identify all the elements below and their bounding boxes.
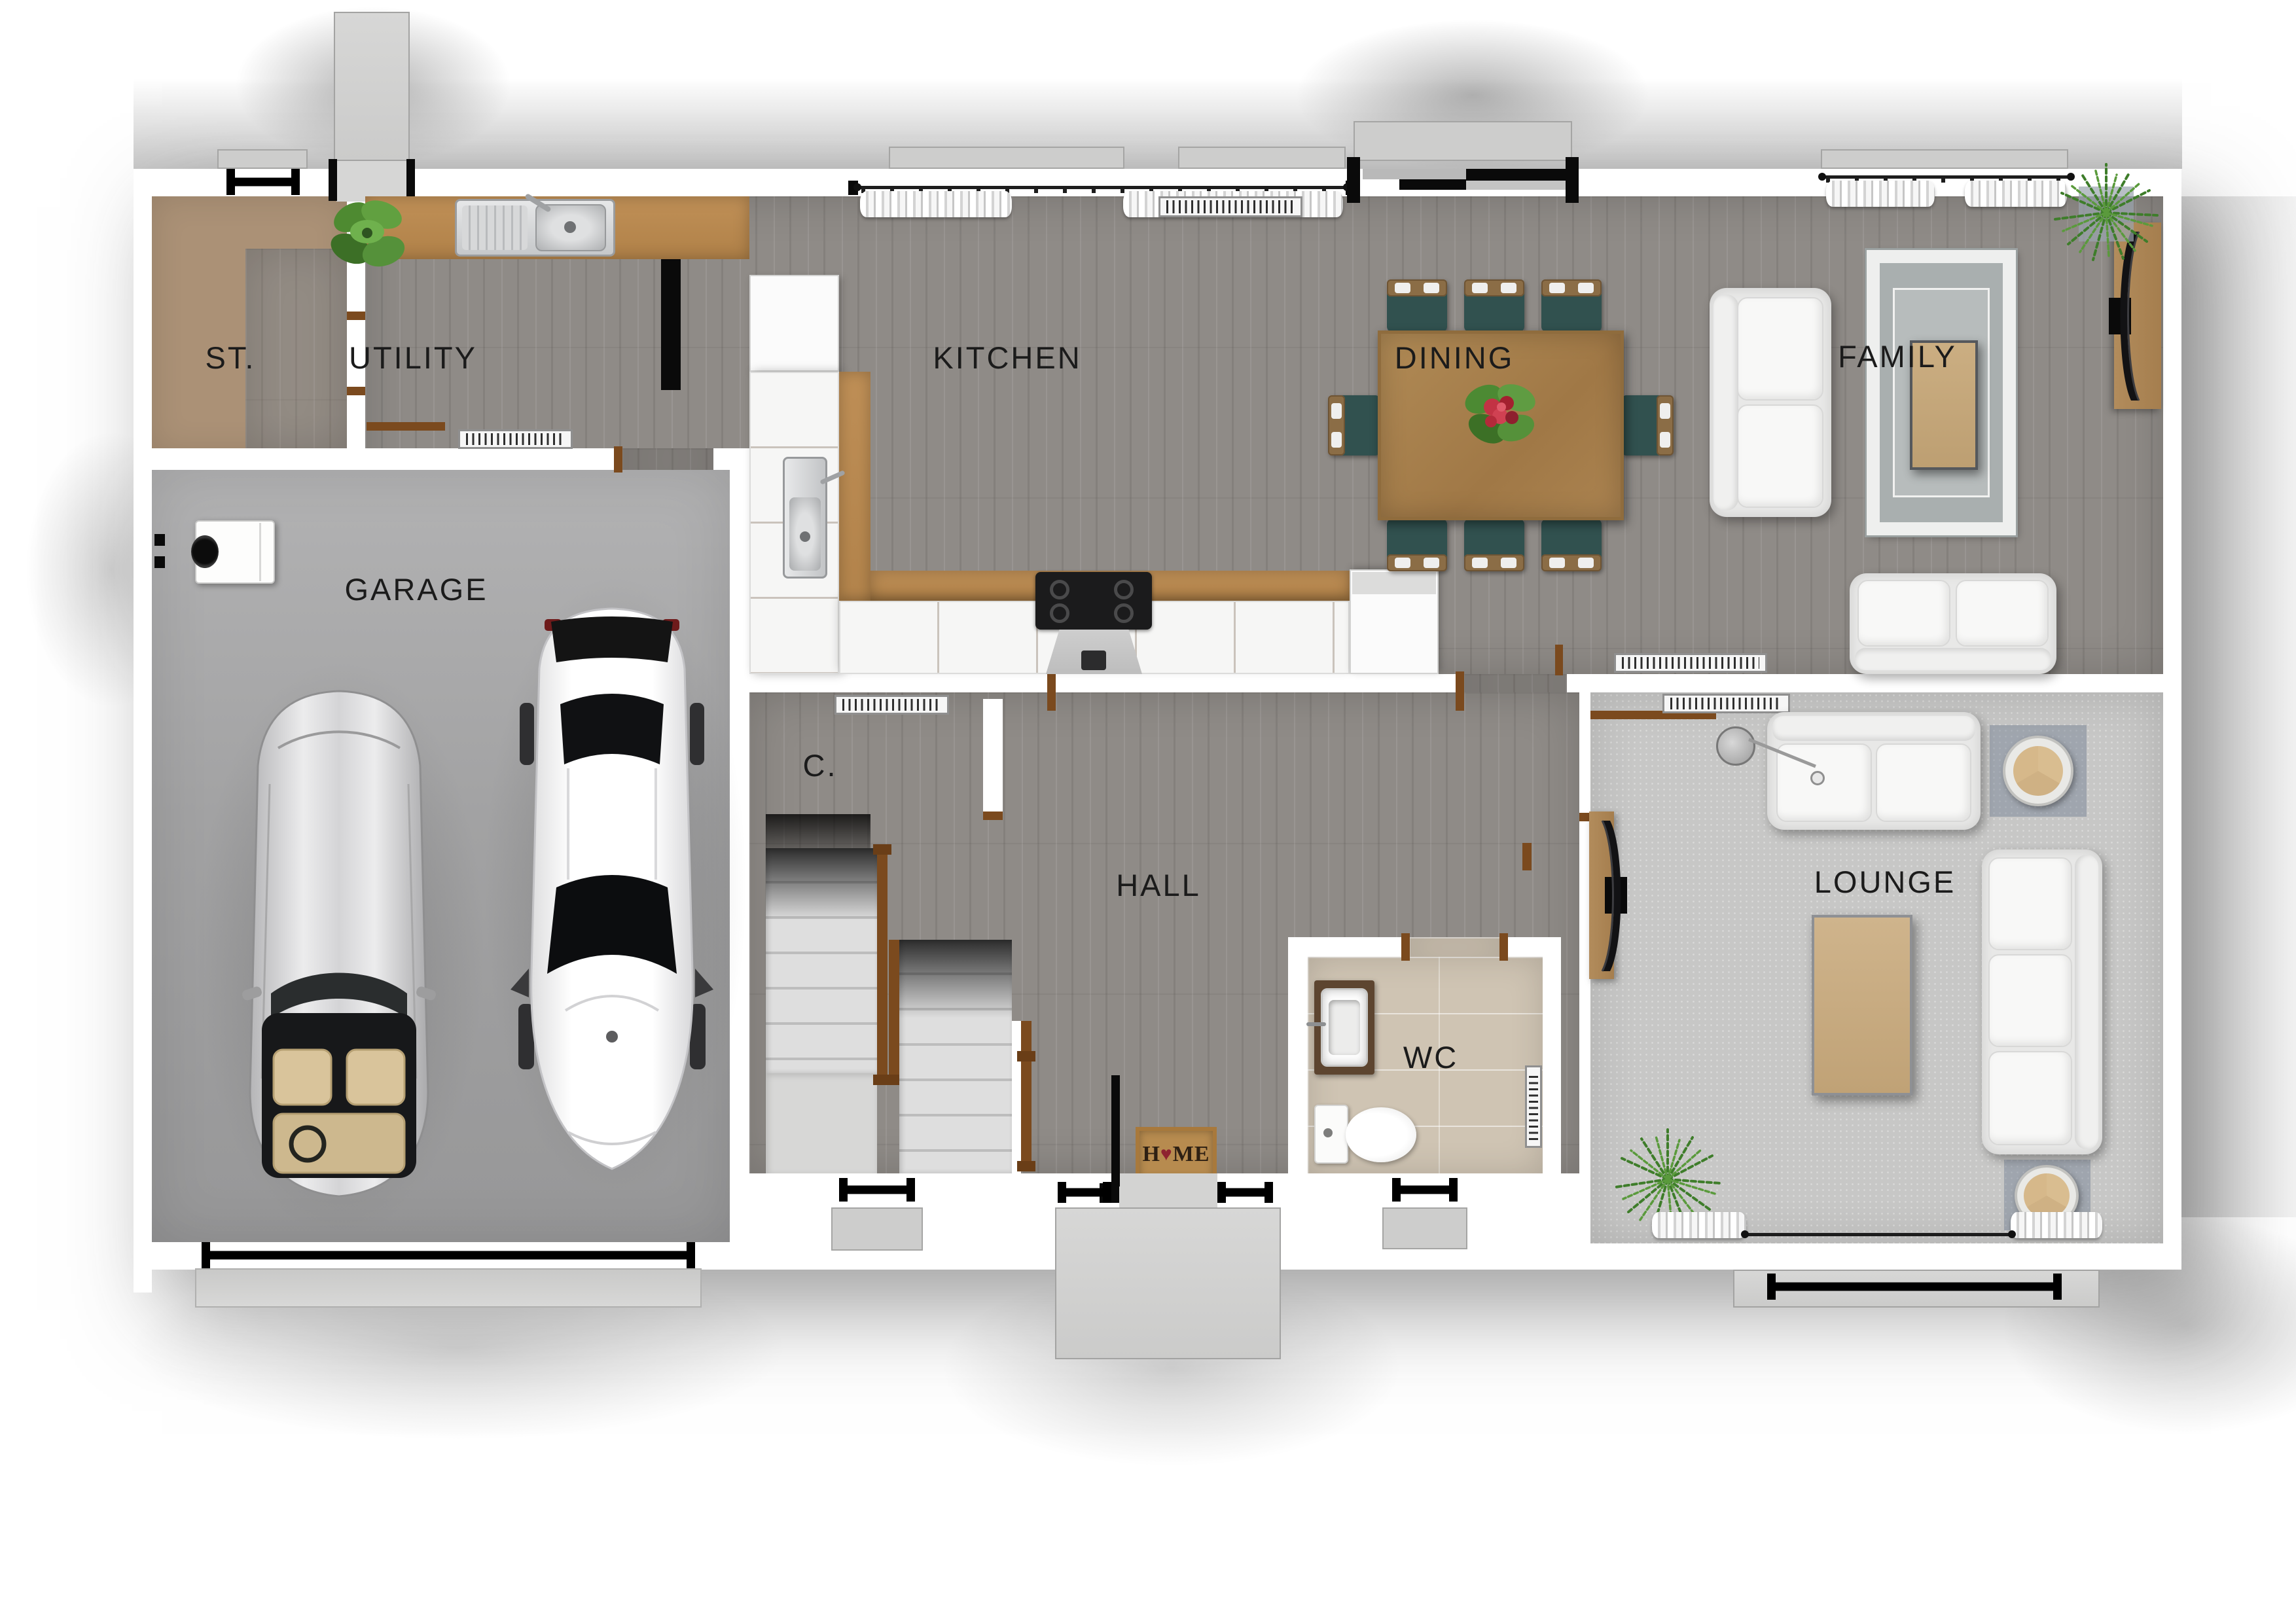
kitchen-radiator [1158, 196, 1302, 217]
hob-burner [1114, 603, 1134, 623]
wall-garage-front [152, 1242, 203, 1270]
floor-lamp [1716, 726, 1755, 766]
stairs-rail-cap [873, 844, 891, 855]
wc-toilet-bowl [1346, 1107, 1416, 1162]
wall-kitchen-hall [749, 674, 1463, 692]
utility-window [226, 169, 300, 195]
stairs-rail-cap [1017, 1161, 1035, 1171]
stairs-landing [766, 1073, 877, 1173]
wall-wc-left [1288, 937, 1308, 1173]
utility-sink-drainer [462, 205, 528, 250]
stairs-handrail [877, 848, 888, 1080]
wall-wc-top [1288, 937, 1409, 957]
chair-pad [1395, 558, 1410, 568]
hall-window-canopy [831, 1207, 923, 1251]
door-jamb [1499, 933, 1508, 961]
chair-pad [1331, 432, 1342, 448]
chair-pad [1578, 558, 1594, 568]
wc-window [1392, 1178, 1458, 1202]
lounge-tv [1590, 819, 1630, 972]
kitchen-window-canopy [1178, 147, 1346, 169]
kitchen-curtain [860, 191, 1012, 217]
lounge-curtain [2011, 1212, 2102, 1238]
dining-flowers [1454, 366, 1546, 458]
door-jamb [1555, 645, 1563, 675]
utility-window-canopy [217, 149, 308, 169]
garage-wall-bracket [154, 556, 165, 568]
chair-pad [1660, 403, 1670, 419]
lounge-coffee-table [1812, 915, 1912, 1096]
kitchen-hob [1035, 572, 1152, 630]
back-door-canopy [1354, 121, 1572, 161]
wall-right [2163, 169, 2181, 1270]
room-label-family: FAMILY [1838, 338, 1957, 374]
floor-plan: H♥ME [0, 0, 2296, 1623]
chair-pad [1501, 283, 1516, 293]
door-jamb [1522, 843, 1532, 870]
family-fern-plant [2047, 157, 2165, 268]
floor-lamp-bulb [1810, 771, 1825, 785]
stairs-handrail [889, 940, 899, 1080]
utility-radiator [458, 429, 573, 449]
car-white [505, 605, 719, 1173]
doormat-text: H [1142, 1142, 1160, 1167]
back-door-leaf [1466, 181, 1566, 190]
back-door-leaf [1466, 169, 1566, 181]
door-jamb [347, 387, 365, 395]
room-label-hall: HALL [1116, 867, 1201, 903]
room-label-garage: GARAGE [344, 571, 488, 607]
wall-left [134, 169, 152, 1293]
lounge-window [1767, 1274, 2062, 1300]
room-label-st: ST. [206, 340, 256, 376]
front-sidelight-window [1058, 1182, 1111, 1203]
wall-utility-garage [365, 448, 622, 470]
lounge-loveseat [1767, 712, 1981, 830]
door-jamb [1401, 933, 1410, 961]
door-jamb [1456, 671, 1464, 711]
lounge-curtain-rod [1746, 1233, 2011, 1236]
side-door-porch [334, 12, 410, 161]
chair-pad [1549, 283, 1565, 293]
room-label-lounge: LOUNGE [1814, 864, 1956, 900]
hob-burner [1050, 603, 1069, 623]
wall-store-bottom [152, 448, 365, 470]
garage-door [202, 1242, 695, 1268]
passage-floor [1463, 674, 1579, 692]
back-door-jamb [1347, 157, 1360, 203]
chair-pad [1424, 558, 1439, 568]
wc-door-threshold [1409, 937, 1500, 957]
shadow-right-wall [2181, 196, 2296, 1217]
stairs-handrail [1021, 1021, 1031, 1171]
chair-pad [1395, 283, 1410, 293]
lounge-curtain [1652, 1212, 1746, 1238]
wall-garage-front [695, 1242, 749, 1270]
extractor-vent [1081, 651, 1106, 670]
door-leaf-utility [367, 422, 445, 431]
back-door-leaf [1363, 169, 1466, 179]
garage-apron [195, 1268, 702, 1308]
back-door-jamb [1566, 157, 1579, 203]
wc-window-canopy [1382, 1207, 1467, 1249]
wc-radiator [1525, 1065, 1542, 1148]
room-label-kitchen: KITCHEN [933, 340, 1081, 376]
room-label-cupboard: C. [803, 747, 838, 783]
wall-family-lounge [1567, 674, 2163, 692]
family-loveseat [1850, 573, 2056, 674]
chair-pad [1472, 283, 1488, 293]
kitchen-sink-drain [800, 531, 810, 542]
wall-lounge-bottom [1579, 1243, 2181, 1270]
family-sofa [1710, 288, 1831, 517]
garage-boiler-port [191, 535, 219, 568]
garage-wall-bracket [154, 534, 165, 546]
room-label-utility: UTILITY [349, 340, 477, 376]
family-window-canopy [1821, 149, 2068, 169]
lounge-radiator [1662, 694, 1790, 713]
chair-pad [1472, 558, 1488, 568]
door-jamb [983, 811, 1003, 820]
front-porch [1055, 1207, 1281, 1359]
stairs-cut-shadow [766, 848, 877, 920]
kitchen-tall-cabinet [749, 275, 839, 372]
front-sidelight-window [1217, 1182, 1273, 1203]
kitchen-window-canopy [889, 147, 1124, 169]
room-label-dining: DINING [1395, 340, 1515, 376]
wall-kitchen-garage [713, 448, 749, 470]
stairs-rail-cap [1017, 1051, 1035, 1061]
wall-wc-right [1543, 937, 1561, 1173]
back-door-leaf [1399, 179, 1466, 190]
round-side-table-top [2013, 746, 2063, 796]
family-curtain [1826, 181, 1935, 207]
stairs-gap [1012, 1021, 1021, 1173]
round-side-table-top [2024, 1173, 2070, 1218]
hall-window [839, 1178, 915, 1202]
chair-pad [1501, 558, 1516, 568]
doormat-heart-icon: ♥ [1160, 1143, 1173, 1166]
wc-faucet [1306, 1022, 1326, 1026]
fridge-top [1352, 572, 1436, 594]
doormat-text: ME [1173, 1142, 1210, 1167]
wall-store-utility [347, 395, 365, 452]
room-store-inner-floor [245, 249, 347, 452]
hall-radiator [834, 695, 949, 715]
hob-burner [1114, 580, 1134, 599]
door-jamb [614, 446, 622, 473]
chair-pad [1424, 283, 1439, 293]
garage-door-passage-floor [622, 448, 713, 470]
front-door-leaf [1111, 1075, 1120, 1186]
chair-pad [1549, 558, 1565, 568]
dining-radiator [1614, 653, 1767, 673]
garage-boiler-fold [259, 523, 261, 581]
stairs-cut-shadow [899, 940, 1012, 1018]
wc-toilet-button [1323, 1128, 1333, 1137]
hob-burner [1050, 580, 1069, 599]
chair-pad [1331, 403, 1342, 419]
chair-pad [1578, 283, 1594, 293]
front-door-threshold [1119, 1173, 1217, 1207]
wall-closet-stub [983, 699, 1003, 819]
door-jamb [347, 312, 365, 320]
car-silver-convertible [216, 686, 462, 1203]
room-label-wc: WC [1403, 1039, 1458, 1075]
utility-sink-drain [564, 221, 576, 233]
lounge-sofa [1982, 849, 2102, 1154]
utility-plant [326, 191, 411, 277]
chair-pad [1660, 432, 1670, 448]
wc-basin-bowl [1329, 1000, 1360, 1055]
door-jamb [1047, 671, 1056, 711]
